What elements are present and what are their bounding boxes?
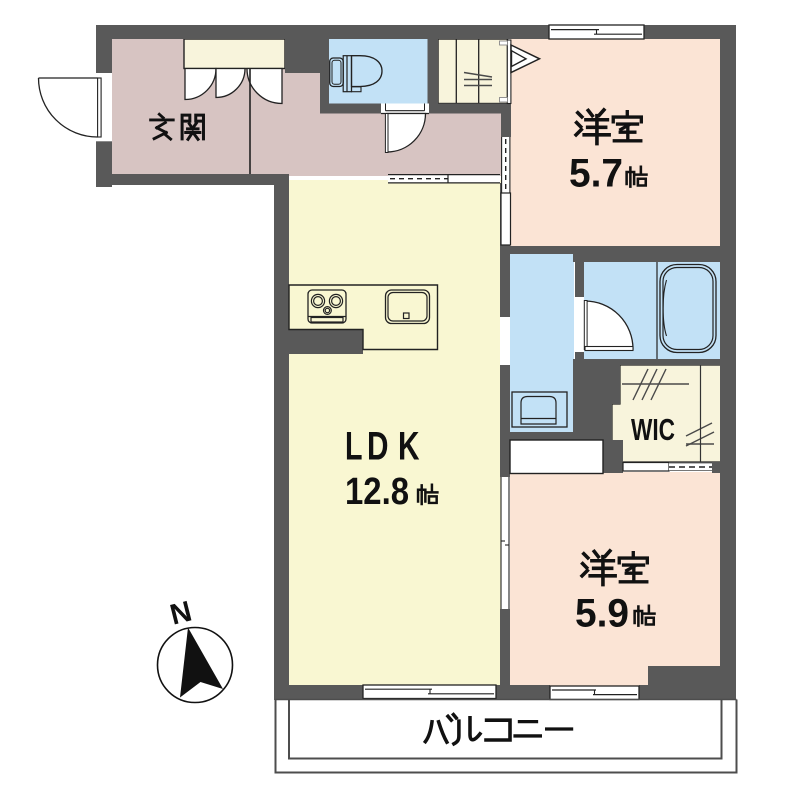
svg-text:L: L <box>345 425 363 469</box>
svg-text:WIC: WIC <box>631 412 675 447</box>
svg-text:K: K <box>398 425 420 469</box>
svg-text:5.9: 5.9 <box>575 592 629 636</box>
svg-text:5.7: 5.7 <box>569 152 623 196</box>
svg-text:D: D <box>367 425 389 469</box>
svg-text:12.8: 12.8 <box>345 471 409 513</box>
